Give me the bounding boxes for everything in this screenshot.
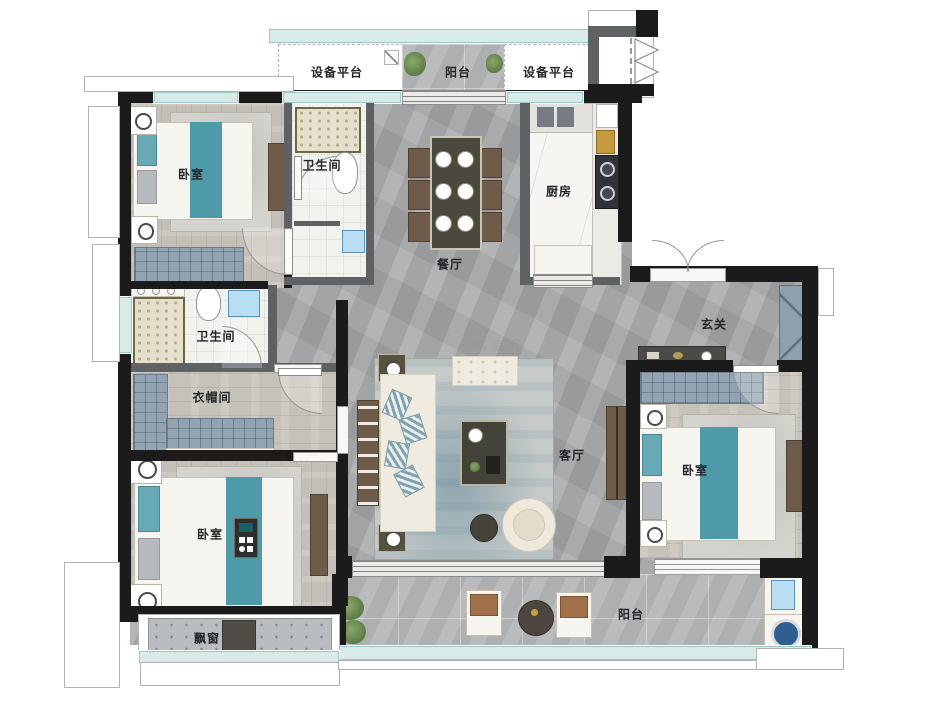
side-table [470, 514, 498, 542]
kitchen-sink [536, 106, 555, 128]
balcony-chair [556, 592, 592, 638]
dining-chair [408, 180, 432, 210]
dining-chair [408, 148, 432, 178]
wall [802, 266, 818, 656]
door-sill [293, 452, 338, 462]
door-leaf [294, 156, 302, 200]
plant-top-balcony-right [486, 54, 503, 73]
nightstand [131, 216, 158, 244]
exterior-frame [140, 662, 340, 686]
cutting-board [596, 130, 615, 154]
shower [133, 297, 185, 367]
room-label-kitchen: 厨房 [546, 183, 572, 200]
bed-control-panel [234, 518, 258, 558]
elevator-door-dash [630, 38, 632, 84]
bed-runner [700, 427, 738, 539]
tv-console [310, 494, 328, 576]
room-label-cloakroom: 衣帽间 [192, 389, 231, 406]
wall [760, 558, 806, 578]
pillow [642, 434, 662, 476]
pillow [642, 482, 662, 520]
kitchen-sliding-door [533, 274, 593, 288]
nightstand [640, 404, 667, 429]
partition [590, 277, 620, 285]
room-label-bay-window: 飘窗 [194, 630, 220, 647]
room-label-foyer: 玄关 [701, 316, 727, 333]
window [282, 91, 402, 104]
room-label-dining: 餐厅 [437, 256, 463, 273]
partition [284, 103, 292, 231]
exterior-frame [88, 106, 120, 238]
nightstand [128, 106, 157, 135]
room-label-bedroom-top-left: 卧室 [178, 166, 204, 183]
pillow [138, 538, 160, 580]
partition [268, 285, 277, 372]
exterior-frame [64, 562, 120, 688]
room-label-bathroom-middle: 卫生间 [196, 328, 235, 345]
balcony-rail-window [336, 645, 812, 661]
wardrobe [133, 374, 168, 454]
balcony-table [518, 600, 554, 636]
elevator-wall-corner [636, 10, 658, 37]
shower [295, 107, 361, 153]
exterior-frame [756, 648, 844, 670]
room-label-bathroom-top: 卫生间 [302, 157, 341, 174]
window [506, 91, 584, 104]
dresser-bench [134, 247, 244, 283]
wall [618, 90, 632, 242]
window-sill [654, 558, 766, 575]
tv-console [606, 406, 628, 500]
wall [777, 360, 806, 372]
living-sliding-door [352, 560, 606, 577]
balcony-door [402, 90, 506, 105]
stove [595, 155, 619, 209]
elevator-door-icon [634, 38, 660, 84]
partition [520, 103, 530, 285]
floor-plan: 楼盘网 楼盘网 [0, 0, 939, 704]
top-rail-window [268, 28, 594, 44]
room-label-balcony-bottom: 阳台 [618, 606, 644, 623]
exterior-frame [338, 660, 812, 670]
sink [342, 230, 365, 253]
watermark-text-small: 楼盘网 [476, 337, 524, 354]
exterior-frame [84, 76, 294, 92]
equip-hatch-box [384, 50, 399, 65]
wardrobe [166, 418, 274, 450]
room-label-bedroom-right: 卧室 [682, 462, 708, 479]
tv-console [268, 143, 285, 211]
partition [520, 277, 534, 285]
dining-chair [408, 212, 432, 242]
coffee-table [460, 420, 508, 486]
bench [452, 356, 518, 386]
kitchen-corner-box [596, 104, 618, 128]
wall [131, 281, 268, 289]
door-leaf [284, 228, 293, 275]
dining-table [430, 136, 482, 250]
exterior-frame [92, 244, 120, 362]
room-label-bedroom-bottom-left: 卧室 [197, 526, 223, 543]
pillow [137, 170, 157, 204]
room-label-living: 客厅 [559, 447, 585, 464]
pillow [138, 486, 160, 532]
sink [771, 580, 795, 610]
wall [626, 362, 640, 558]
bath-partition [294, 221, 340, 226]
armchair [502, 498, 556, 552]
door-leaf [733, 365, 779, 373]
kitchen-sink [556, 106, 575, 128]
partition [284, 277, 374, 285]
nightstand [640, 520, 667, 547]
door-leaf [278, 368, 322, 376]
room-label-equip-platform-left: 设备平台 [311, 64, 363, 81]
wall [604, 556, 640, 578]
room-label-balcony-top: 阳台 [445, 64, 471, 81]
toilet [196, 286, 221, 321]
sofa-pillow [384, 440, 410, 469]
partition [366, 103, 374, 285]
exterior-frame [818, 268, 834, 316]
balcony-chair [466, 590, 502, 636]
bookshelf [357, 400, 379, 506]
room-label-equip-platform-right: 设备平台 [523, 64, 575, 81]
wall [626, 360, 733, 372]
sink [228, 290, 260, 317]
door-sill [337, 406, 349, 454]
window [153, 91, 239, 104]
